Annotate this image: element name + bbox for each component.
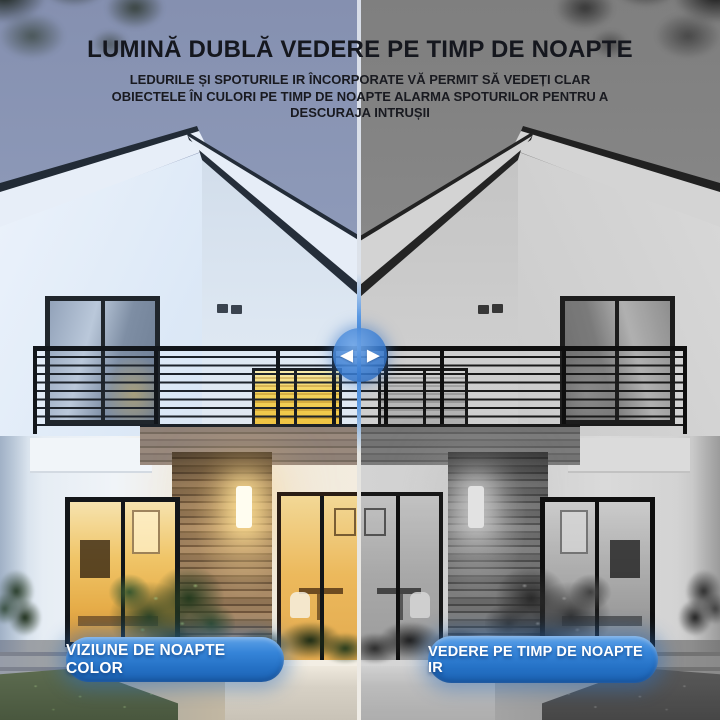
- interior-chair: [290, 592, 310, 618]
- railing-post: [33, 346, 37, 434]
- wall-vent: [492, 304, 503, 313]
- subtitle-line: OBIECTELE ÎN CULORI PE TIMP DE NOAPTE AL…: [60, 89, 660, 106]
- railing-post: [154, 346, 158, 434]
- balcony-parapet: [568, 438, 690, 473]
- balcony-railing: [360, 346, 687, 434]
- wall-lamp: [236, 486, 252, 528]
- color-night-vision-label: VIZIUNE DE NOAPTE COLOR: [66, 642, 284, 678]
- balcony-railing: [33, 346, 360, 434]
- interior-picture-frame: [364, 508, 386, 536]
- arrow-left-icon: ◀: [340, 347, 353, 364]
- subtitle-line: DESCURAJA INTRUȘII: [60, 105, 660, 122]
- railing-post: [276, 346, 280, 434]
- railing-post: [562, 346, 566, 434]
- subtitle-line: LEDURILE ȘI SPOTURILE IR ÎNCORPORATE VĂ …: [60, 72, 660, 89]
- interior-picture-frame: [334, 508, 356, 536]
- comparison-slider-handle[interactable]: ◀ ▶: [333, 328, 387, 382]
- wall-lamp: [468, 486, 484, 528]
- railing-post: [683, 346, 687, 434]
- wall-shadow: [0, 436, 28, 652]
- wall-vent: [217, 304, 228, 313]
- railing-wires: [33, 356, 360, 428]
- interior-chair: [410, 592, 430, 618]
- wall-vent: [231, 305, 242, 314]
- railing-wires: [360, 356, 687, 428]
- railing-post: [440, 346, 444, 434]
- ir-night-vision-label: VEDERE PE TIMP DE NOAPTE IR: [428, 644, 658, 676]
- wall-shadow: [692, 436, 720, 652]
- wall-vent: [478, 305, 489, 314]
- page-title: LUMINĂ DUBLĂ VEDERE PE TIMP DE NOAPTE: [0, 36, 720, 64]
- subtitle: LEDURILE ȘI SPOTURILE IR ÎNCORPORATE VĂ …: [60, 72, 660, 122]
- comparison-image: LUMINĂ DUBLĂ VEDERE PE TIMP DE NOAPTE LE…: [0, 0, 720, 720]
- arrow-right-icon: ▶: [367, 347, 380, 364]
- ir-night-vision-button[interactable]: VEDERE PE TIMP DE NOAPTE IR: [428, 636, 658, 683]
- railing-top-bar: [360, 346, 687, 351]
- railing-top-bar: [33, 346, 360, 351]
- balcony-parapet: [30, 438, 152, 473]
- header: LUMINĂ DUBLĂ VEDERE PE TIMP DE NOAPTE: [0, 36, 720, 64]
- color-night-vision-button[interactable]: VIZIUNE DE NOAPTE COLOR: [66, 637, 284, 682]
